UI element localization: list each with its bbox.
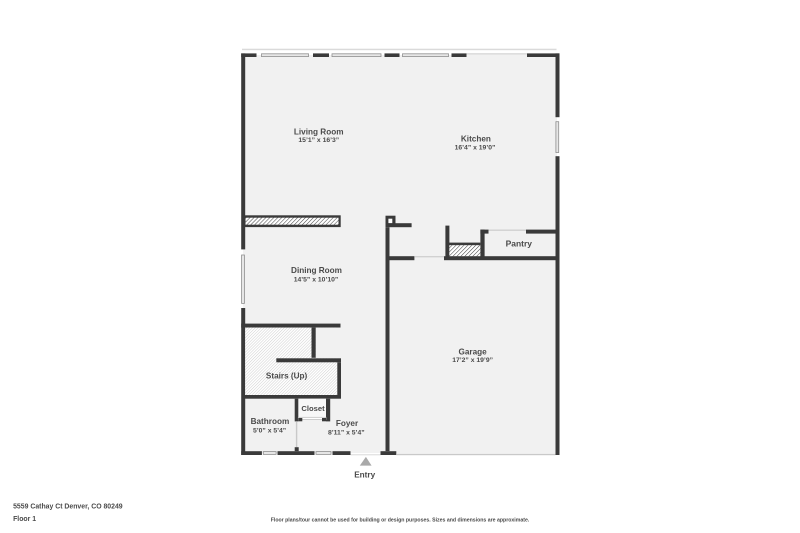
svg-text:Floor plans/tour cannot be use: Floor plans/tour cannot be used for buil… [271, 518, 530, 524]
svg-text:17’2” x 19’9”: 17’2” x 19’9” [452, 357, 493, 364]
svg-text:Closet: Closet [301, 404, 325, 413]
svg-text:Living Room: Living Room [294, 128, 344, 137]
svg-text:Stairs (Up): Stairs (Up) [266, 372, 308, 381]
svg-text:Entry: Entry [354, 471, 375, 480]
svg-text:8’11” x 5’4”: 8’11” x 5’4” [328, 430, 365, 437]
svg-text:Foyer: Foyer [336, 419, 359, 428]
svg-text:16’4” x 19’0”: 16’4” x 19’0” [455, 145, 496, 152]
svg-text:14’5” x 10’10”: 14’5” x 10’10” [294, 277, 339, 284]
svg-text:Floor 1: Floor 1 [13, 516, 36, 523]
svg-text:5’0” x 5’4”: 5’0” x 5’4” [253, 428, 286, 435]
svg-text:Dining Room: Dining Room [291, 266, 342, 275]
svg-text:Garage: Garage [458, 347, 487, 356]
svg-text:Bathroom: Bathroom [251, 417, 290, 426]
svg-text:Pantry: Pantry [506, 239, 533, 249]
svg-text:Kitchen: Kitchen [461, 134, 491, 143]
svg-text:15’1” x 16’3”: 15’1” x 16’3” [298, 137, 339, 144]
svg-text:5559 Cathay Ct Denver, CO 8024: 5559 Cathay Ct Denver, CO 80249 [13, 503, 123, 510]
